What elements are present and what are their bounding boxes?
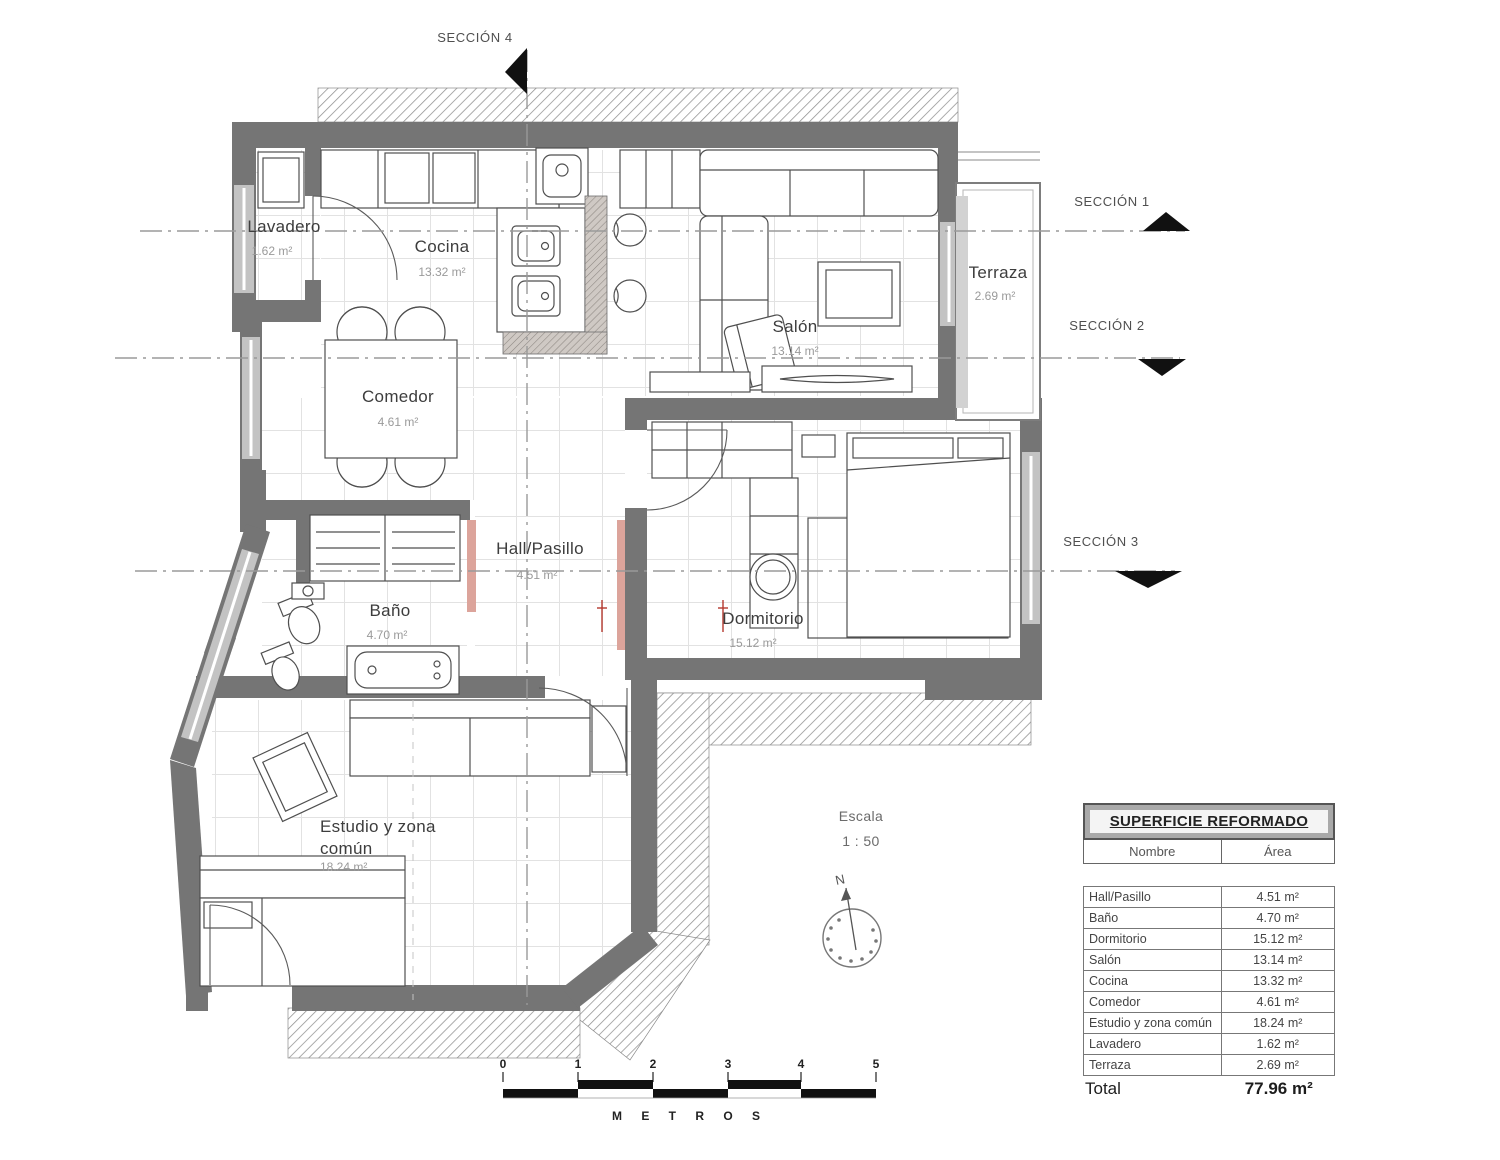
area-table-columns: Nombre Área xyxy=(1083,840,1335,864)
row-name: Baño xyxy=(1084,908,1222,928)
room-label-bano: Baño xyxy=(370,601,411,620)
row-name: Hall/Pasillo xyxy=(1084,887,1222,907)
scale-bar-unit: M E T R O S xyxy=(612,1109,768,1123)
scale-tick-0: 0 xyxy=(500,1057,507,1071)
table-row: Baño4.70 m² xyxy=(1084,908,1334,929)
row-name: Salón xyxy=(1084,950,1222,970)
scale-note-value: 1 : 50 xyxy=(842,833,879,849)
row-area: 1.62 m² xyxy=(1222,1034,1335,1054)
table-row: Dormitorio15.12 m² xyxy=(1084,929,1334,950)
hatch-vertical-band xyxy=(657,693,709,945)
row-area: 4.51 m² xyxy=(1222,887,1335,907)
room-label-terraza: Terraza xyxy=(969,263,1028,282)
table-row: Hall/Pasillo4.51 m² xyxy=(1084,887,1334,908)
room-area-lavadero: 1.62 m² xyxy=(252,244,293,258)
column-header-area: Área xyxy=(1222,840,1335,863)
row-name: Cocina xyxy=(1084,971,1222,991)
room-label-estudio-line1: Estudio y zona xyxy=(320,817,436,836)
room-area-dormitorio: 15.12 m² xyxy=(729,636,776,650)
room-label-lavadero: Lavadero xyxy=(247,217,320,236)
scale-tick-4: 4 xyxy=(798,1057,805,1071)
room-area-salon: 13.14 m² xyxy=(771,344,818,358)
bathtub xyxy=(347,646,459,694)
studio-sofa xyxy=(350,700,626,776)
room-label-cocina: Cocina xyxy=(415,237,470,256)
row-area: 18.24 m² xyxy=(1222,1013,1335,1033)
terraza-threshold xyxy=(956,196,968,408)
bath-sink xyxy=(292,583,324,599)
hatch-right-band xyxy=(657,693,1031,745)
table-row: Terraza2.69 m² xyxy=(1084,1055,1334,1075)
kitchen-counter xyxy=(321,150,700,208)
kitchen-island xyxy=(497,208,585,332)
section-3-label: SECCIÓN 3 xyxy=(1063,534,1138,549)
table-row: Estudio y zona común18.24 m² xyxy=(1084,1013,1334,1034)
room-area-hall: 4.51 m² xyxy=(517,568,558,582)
row-name: Dormitorio xyxy=(1084,929,1222,949)
area-table-total-row: Total 77.96 m² xyxy=(1083,1076,1335,1099)
row-area: 15.12 m² xyxy=(1222,929,1335,949)
total-value: 77.96 m² xyxy=(1223,1079,1336,1099)
washing-machine xyxy=(258,152,304,208)
room-label-estudio-line2: común xyxy=(320,839,373,858)
room-area-bano: 4.70 m² xyxy=(367,628,408,642)
area-table-header: SUPERFICIE REFORMADO xyxy=(1083,803,1335,840)
row-area: 13.32 m² xyxy=(1222,971,1335,991)
room-label-comedor: Comedor xyxy=(362,387,434,406)
row-name: Comedor xyxy=(1084,992,1222,1012)
table-row: Cocina13.32 m² xyxy=(1084,971,1334,992)
room-label-hall: Hall/Pasillo xyxy=(496,539,584,558)
room-area-estudio: 18.24 m² xyxy=(320,860,367,874)
section-1-label: SECCIÓN 1 xyxy=(1074,194,1149,209)
column-header-nombre: Nombre xyxy=(1084,840,1222,863)
table-row: Comedor4.61 m² xyxy=(1084,992,1334,1013)
scale-tick-1: 1 xyxy=(575,1057,582,1071)
round-chair xyxy=(750,554,796,600)
table-row: Lavadero1.62 m² xyxy=(1084,1034,1334,1055)
area-table-rows: Hall/Pasillo4.51 m² Baño4.70 m² Dormitor… xyxy=(1083,886,1335,1076)
scale-tick-2: 2 xyxy=(650,1057,657,1071)
total-label: Total xyxy=(1083,1079,1223,1099)
studio-bed xyxy=(200,898,405,986)
row-name: Estudio y zona común xyxy=(1084,1013,1222,1033)
floorplan-page: SECCIÓN 4 SECCIÓN 1 SECCIÓN 2 SECCIÓN 3 … xyxy=(0,0,1500,1160)
row-area: 13.14 m² xyxy=(1222,950,1335,970)
table-row: Salón13.14 m² xyxy=(1084,950,1334,971)
row-name: Lavadero xyxy=(1084,1034,1222,1054)
new-partition-hall-east xyxy=(617,520,625,650)
hatch-bottom-band xyxy=(288,1008,580,1058)
scale-note-label: Escala xyxy=(839,808,883,824)
terraza-structure xyxy=(956,152,1040,420)
room-label-salon: Salón xyxy=(773,317,818,336)
room-area-terraza: 2.69 m² xyxy=(975,289,1016,303)
scale-tick-5: 5 xyxy=(873,1057,880,1071)
row-area: 4.61 m² xyxy=(1222,992,1335,1012)
scale-tick-3: 3 xyxy=(725,1057,732,1071)
studio-shelf xyxy=(200,856,405,898)
row-area: 2.69 m² xyxy=(1222,1055,1335,1075)
room-label-dormitorio: Dormitorio xyxy=(722,609,803,628)
room-area-comedor: 4.61 m² xyxy=(378,415,419,429)
section-4-label: SECCIÓN 4 xyxy=(437,30,512,45)
coffee-table xyxy=(818,262,900,326)
hatch-top-band xyxy=(318,88,958,122)
table-gap xyxy=(1083,864,1335,886)
new-partition-hall-west xyxy=(467,520,476,612)
area-table-title: SUPERFICIE REFORMADO xyxy=(1090,810,1328,833)
row-area: 4.70 m² xyxy=(1222,908,1335,928)
section-2-label: SECCIÓN 2 xyxy=(1069,318,1144,333)
room-area-cocina: 13.32 m² xyxy=(418,265,465,279)
row-name: Terraza xyxy=(1084,1055,1222,1075)
area-table: SUPERFICIE REFORMADO Nombre Área Hall/Pa… xyxy=(1083,803,1335,1099)
kitchen-sink-top xyxy=(536,148,588,204)
